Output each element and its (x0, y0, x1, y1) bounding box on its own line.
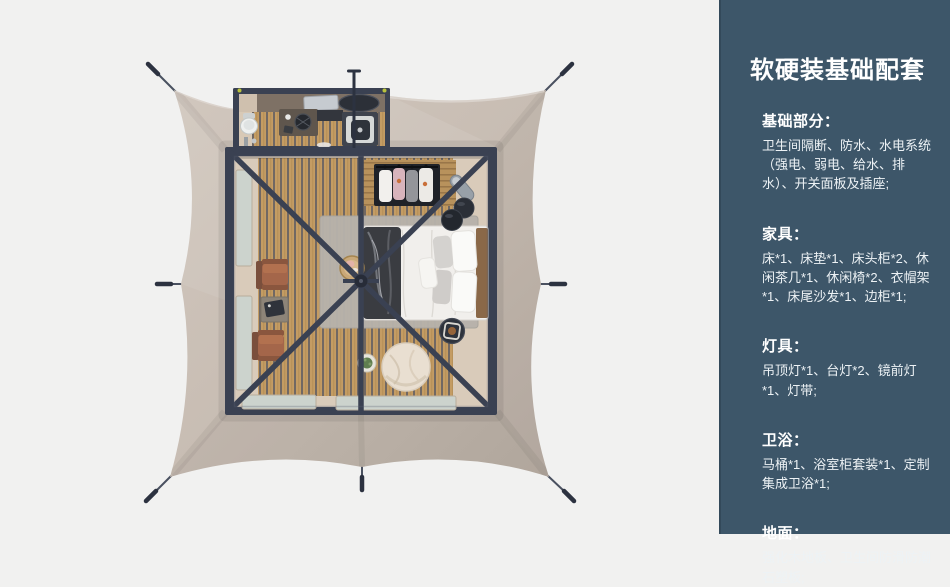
garment-pink (393, 168, 405, 200)
section-basics: 基础部分： 卫生间隔断、防水、水电系统（强电、弱电、给水、排水）、开关面板及插座… (762, 110, 936, 194)
section-furniture-heading: 家具： (762, 223, 936, 244)
integrated-shower-unit (339, 95, 379, 147)
tray-side-table (440, 319, 465, 344)
stake-bottom-right (547, 475, 574, 501)
stake-top-left (148, 64, 176, 92)
stake-top-right (544, 64, 572, 92)
section-basics-body: 卫生间隔断、防水、水电系统（强电、弱电、给水、排水）、开关面板及插座; (762, 136, 936, 194)
section-furniture-body: 床*1、床垫*1、床头柜*2、休闲茶几*1、休闲椅*2、衣帽架*1、床尾沙发*1… (762, 249, 936, 307)
corner-marker-left (238, 89, 242, 93)
bathroom-mirror (304, 95, 339, 111)
section-furniture: 家具： 床*1、床垫*1、床头柜*2、休闲茶几*1、休闲椅*2、衣帽架*1、床尾… (762, 223, 936, 307)
vanity-cabinet (279, 109, 318, 136)
center-hub (355, 275, 368, 288)
section-bathroom-heading: 卫浴： (762, 429, 936, 450)
bean-bag-pouf (382, 343, 430, 391)
section-bathroom-body: 马桶*1、浴室柜套装*1、定制集成卫浴*1; (762, 455, 936, 493)
window-left-lower (236, 296, 252, 390)
section-flooring-heading: 地面： (762, 522, 936, 543)
tea-table (261, 297, 288, 322)
main-room (225, 147, 497, 415)
tent-top-view-render (0, 0, 719, 534)
coat-rack (374, 164, 440, 206)
window-left-upper (236, 170, 252, 266)
bathroom-annex (233, 88, 390, 148)
section-basics-heading: 基础部分： (762, 110, 936, 131)
bath-mat (317, 142, 331, 148)
section-lighting-heading: 灯具： (762, 335, 936, 356)
panel-title: 软硬装基础配套 (739, 50, 936, 85)
counter-top (317, 110, 343, 121)
headboard (476, 228, 488, 318)
stake-bottom-left (146, 475, 172, 501)
section-flooring-body: 强化木地板、卫生间防滑防潮石塑板; (762, 548, 936, 586)
bed (363, 226, 488, 320)
section-lighting: 灯具： 吊顶灯*1、台灯*2、镜前灯*1、灯带; (762, 335, 936, 399)
spec-sections: 基础部分： 卫生间隔断、防水、水电系统（强电、弱电、给水、排水）、开关面板及插座… (762, 110, 936, 587)
spec-panel: 软硬装基础配套 基础部分： 卫生间隔断、防水、水电系统（强电、弱电、给水、排水）… (719, 0, 950, 534)
window-bottom-right (336, 396, 456, 410)
corner-marker-right (383, 89, 387, 93)
section-bathroom: 卫浴： 马桶*1、浴室柜套装*1、定制集成卫浴*1; (762, 429, 936, 493)
page: 软硬装基础配套 基础部分： 卫生间隔断、防水、水电系统（强电、弱电、给水、排水）… (0, 0, 950, 534)
section-lighting-body: 吊顶灯*1、台灯*2、镜前灯*1、灯带; (762, 361, 936, 399)
garment-gray (406, 170, 418, 202)
lounge-chair-upper (256, 259, 288, 290)
garment-white-1 (379, 170, 392, 202)
section-flooring: 地面： 强化木地板、卫生间防滑防潮石塑板; (762, 522, 936, 586)
lounge-chair-lower (252, 330, 284, 361)
